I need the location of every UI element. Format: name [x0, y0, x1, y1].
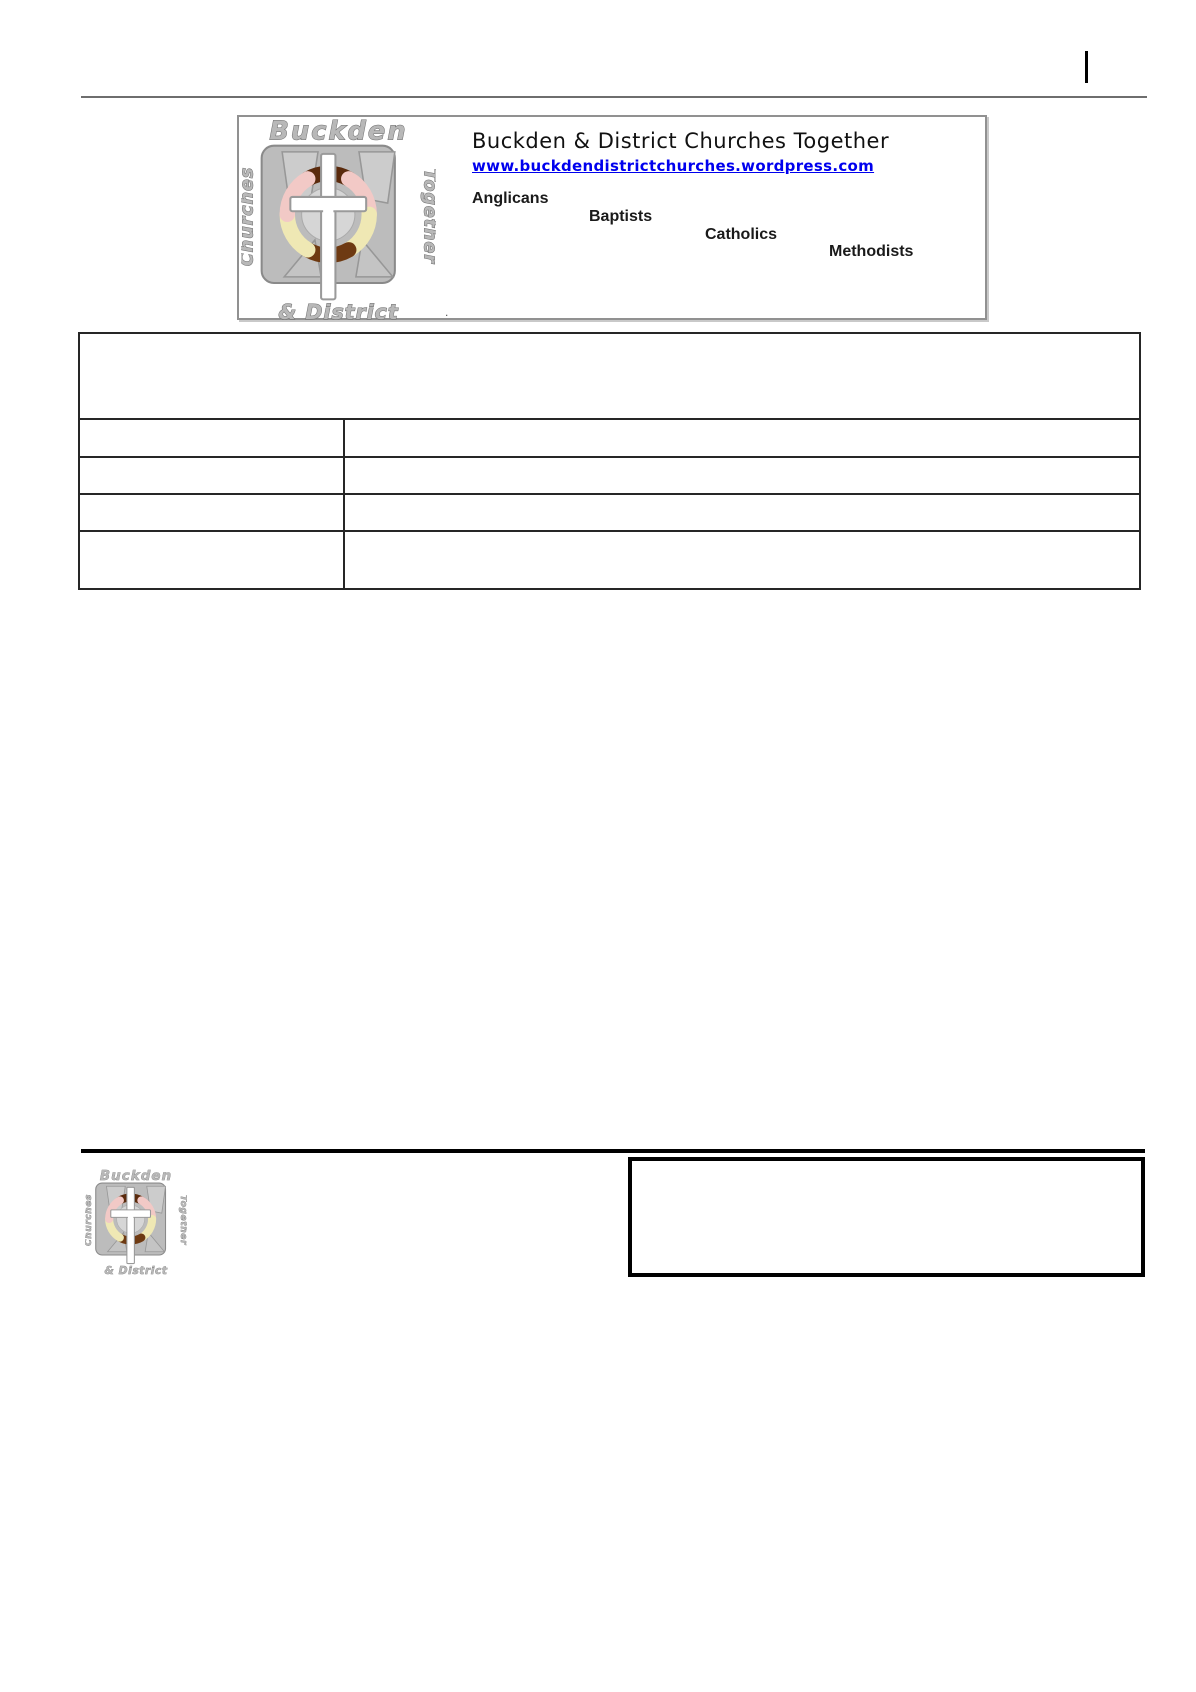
table-row — [80, 458, 1139, 495]
schedule-table — [78, 332, 1141, 590]
website-link[interactable]: www.buckdendistrictchurches.wordpress.co… — [472, 157, 874, 175]
table-row — [80, 532, 1139, 588]
text-cursor — [1085, 51, 1088, 83]
stray-period-mark: . — [445, 305, 448, 319]
table-cell-label[interactable] — [80, 495, 345, 530]
denomination-baptists: Baptists — [589, 208, 652, 226]
table-cell-label[interactable] — [80, 532, 345, 588]
table-header-cell[interactable] — [80, 334, 1139, 420]
page-title: Buckden & District Churches Together — [472, 129, 889, 153]
table-cell-value[interactable] — [345, 495, 1139, 530]
table-cell-value[interactable] — [345, 420, 1139, 456]
top-horizontal-rule — [81, 96, 1147, 98]
notice-box[interactable] — [628, 1157, 1145, 1277]
churches-together-logo-small — [85, 1168, 187, 1277]
table-cell-value[interactable] — [345, 458, 1139, 493]
document-page: Buckden Churches Together & District Buc… — [0, 0, 1196, 1692]
letterhead-box: Buckden & District Churches Together www… — [237, 115, 987, 320]
table-row — [80, 495, 1139, 532]
table-cell-label[interactable] — [80, 458, 345, 493]
table-row — [80, 420, 1139, 458]
table-cell-value[interactable] — [345, 532, 1139, 588]
bottom-horizontal-rule — [81, 1149, 1145, 1153]
table-cell-label[interactable] — [80, 420, 345, 456]
churches-together-logo — [241, 117, 436, 325]
denomination-catholics: Catholics — [705, 226, 777, 244]
denomination-methodists: Methodists — [829, 243, 913, 261]
denomination-anglicans: Anglicans — [472, 190, 548, 208]
